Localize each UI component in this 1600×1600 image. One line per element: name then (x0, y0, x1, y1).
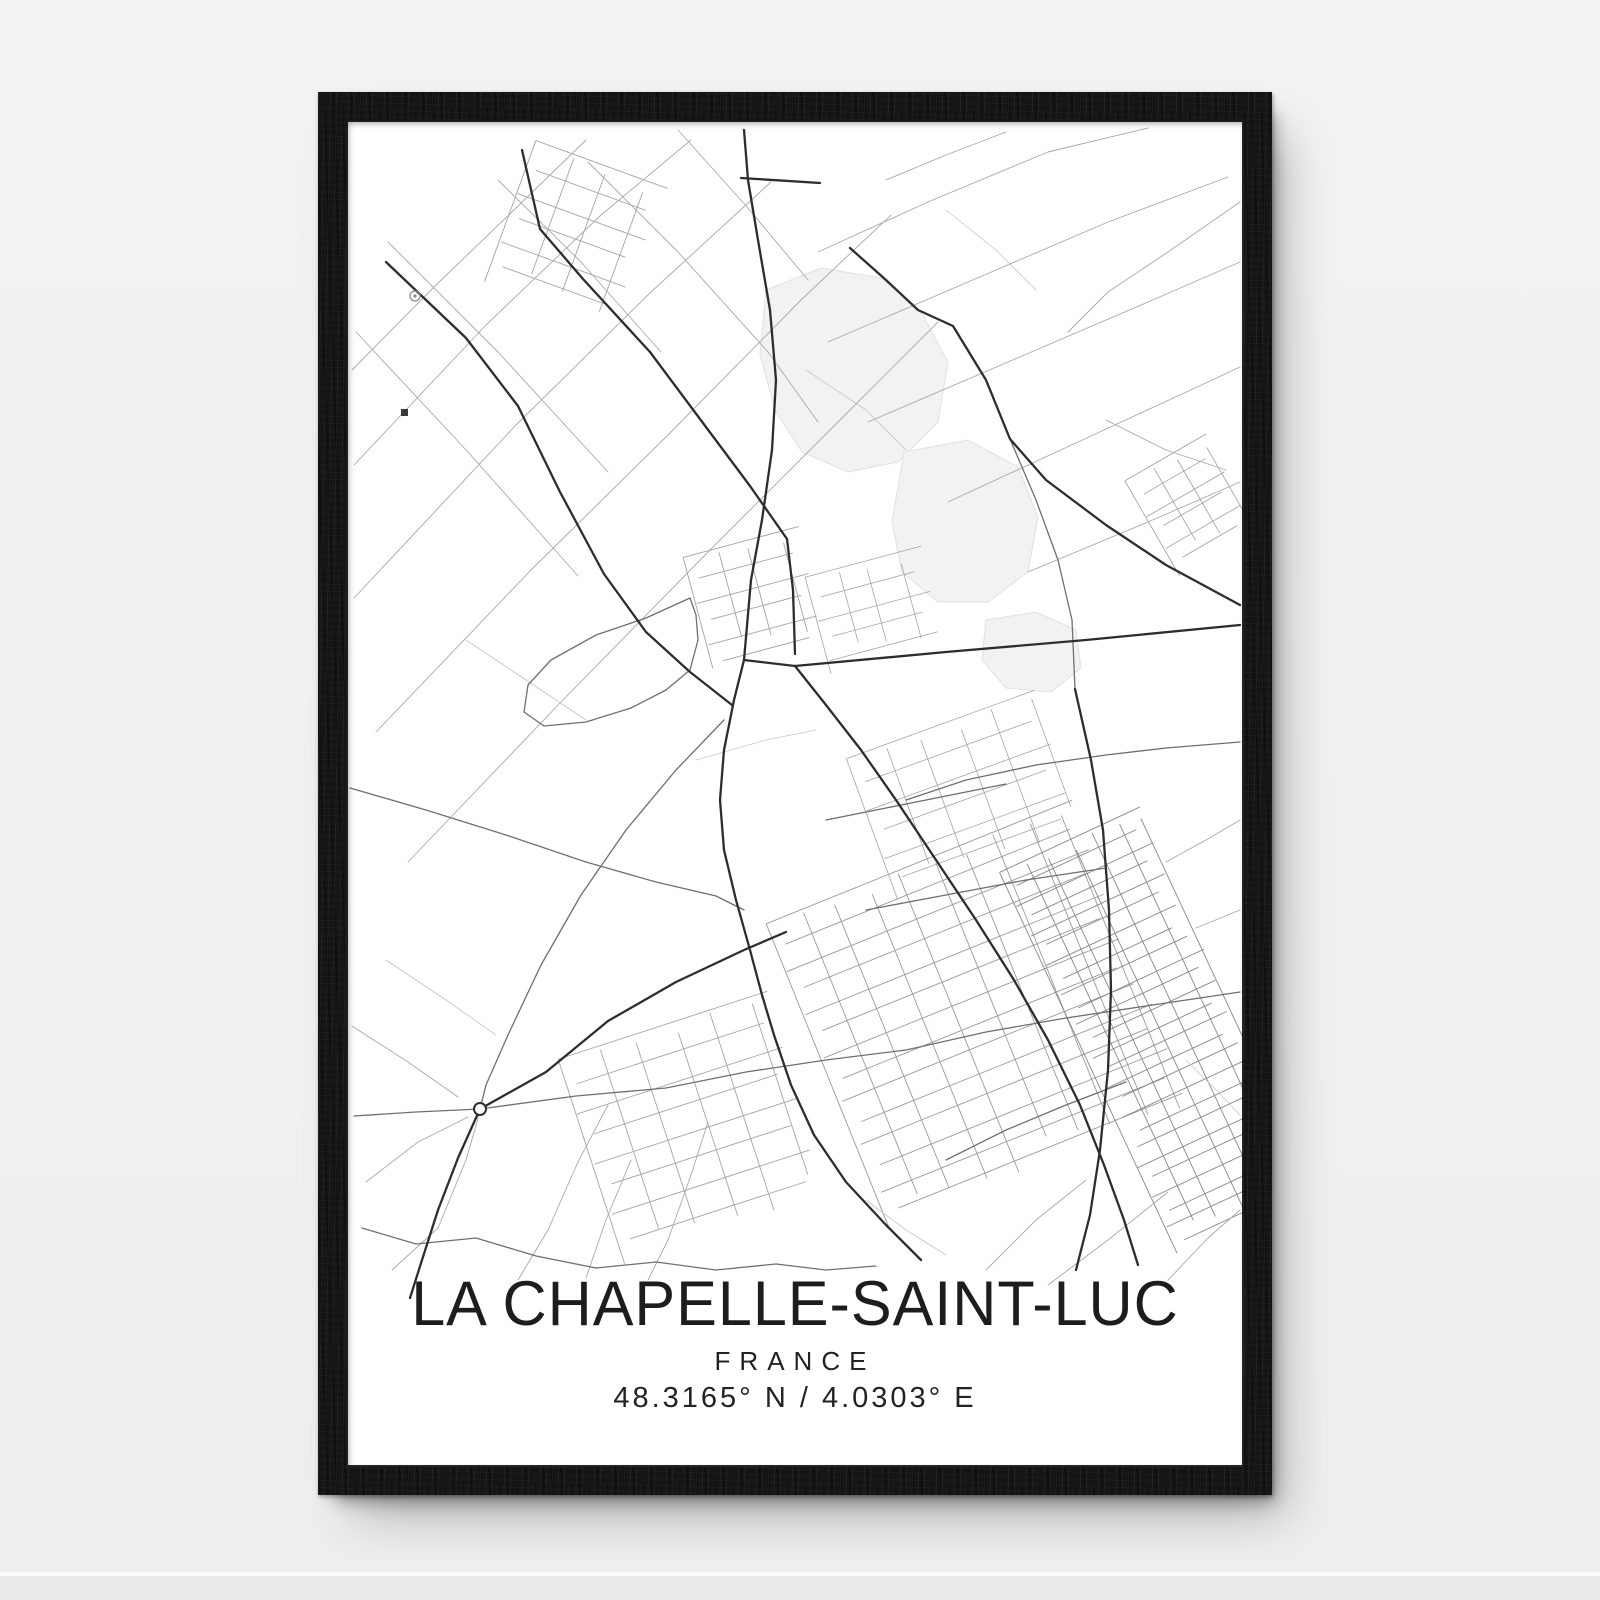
wall: { "poster": { "title": "LA CHAPELLE-SAIN… (0, 0, 1600, 1600)
picture-frame: LA CHAPELLE-SAINT-LUC FRANCE 48.3165° N … (318, 92, 1272, 1495)
country-label: FRANCE (346, 1346, 1244, 1377)
city-title: LA CHAPELLE-SAINT-LUC (359, 1268, 1230, 1340)
coordinates-label: 48.3165° N / 4.0303° E (346, 1382, 1244, 1415)
wall-lower-band (0, 1576, 1600, 1600)
map-poster: LA CHAPELLE-SAINT-LUC FRANCE 48.3165° N … (346, 120, 1244, 1467)
city-map (346, 120, 1244, 1310)
